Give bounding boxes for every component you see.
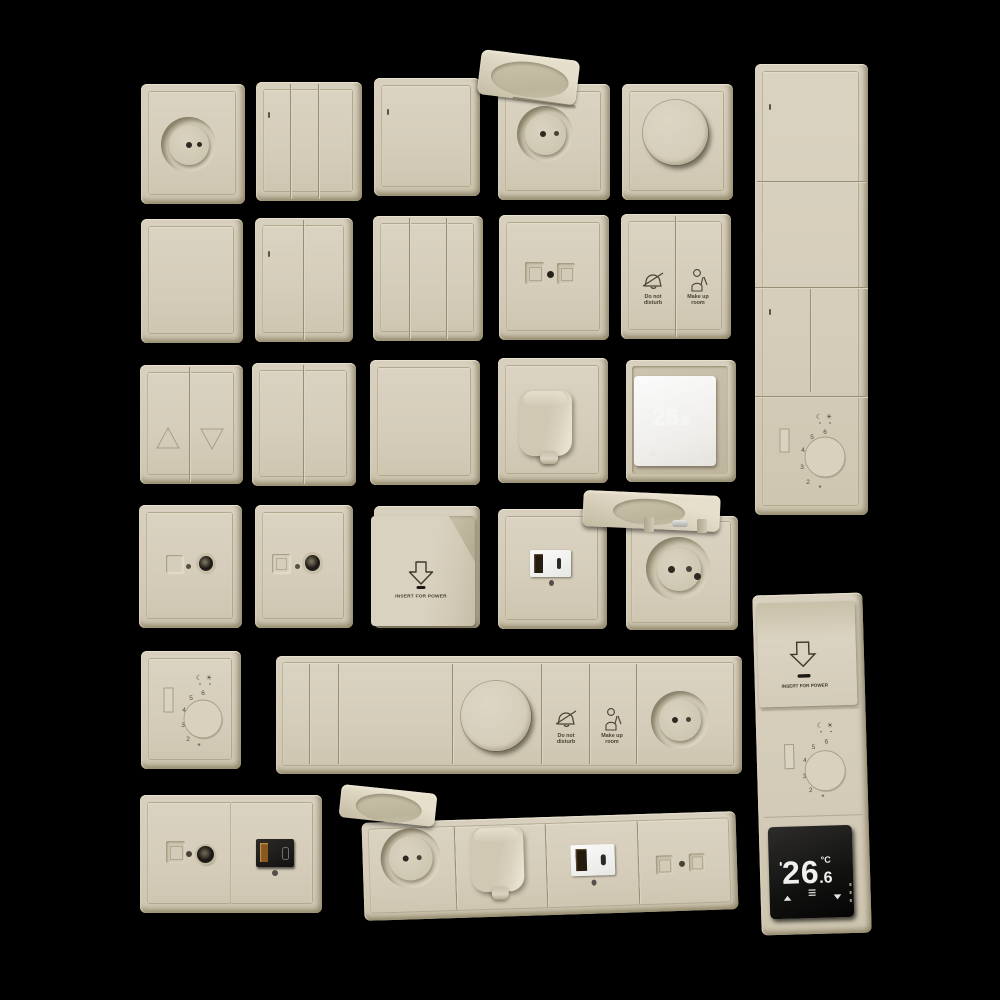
svg-text:room: room bbox=[691, 300, 705, 306]
svg-text:*: * bbox=[818, 484, 821, 493]
svg-text:.6: .6 bbox=[819, 869, 833, 886]
svg-text:6: 6 bbox=[824, 739, 828, 746]
svg-text:4: 4 bbox=[801, 447, 805, 454]
svg-text:2: 2 bbox=[806, 479, 810, 486]
svg-text:INSERT FOR POWER: INSERT FOR POWER bbox=[395, 594, 447, 600]
svg-text:*: * bbox=[821, 793, 824, 802]
svg-text:☾: ☾ bbox=[816, 413, 822, 421]
svg-text:5: 5 bbox=[189, 695, 193, 702]
svg-text:*: * bbox=[197, 742, 200, 751]
svg-text:6: 6 bbox=[201, 690, 205, 697]
svg-text:disturb: disturb bbox=[644, 300, 663, 306]
svg-text:room: room bbox=[605, 739, 619, 745]
svg-text:☾: ☾ bbox=[817, 722, 824, 730]
svg-text:☀: ☀ bbox=[827, 721, 834, 729]
svg-text:°C: °C bbox=[821, 855, 832, 865]
svg-text:☀: ☀ bbox=[826, 413, 832, 421]
svg-text:☾: ☾ bbox=[196, 674, 202, 682]
svg-text:5: 5 bbox=[812, 744, 816, 751]
svg-text:2: 2 bbox=[186, 736, 190, 743]
svg-text:disturb: disturb bbox=[557, 739, 576, 745]
svg-text:☀: ☀ bbox=[206, 674, 212, 682]
svg-text:3: 3 bbox=[800, 464, 804, 471]
svg-text:6: 6 bbox=[823, 429, 827, 436]
svg-text:26: 26 bbox=[782, 854, 821, 891]
svg-text:5: 5 bbox=[810, 434, 814, 441]
svg-text:2: 2 bbox=[809, 787, 813, 794]
svg-text:INSERT FOR POWER: INSERT FOR POWER bbox=[782, 683, 829, 689]
